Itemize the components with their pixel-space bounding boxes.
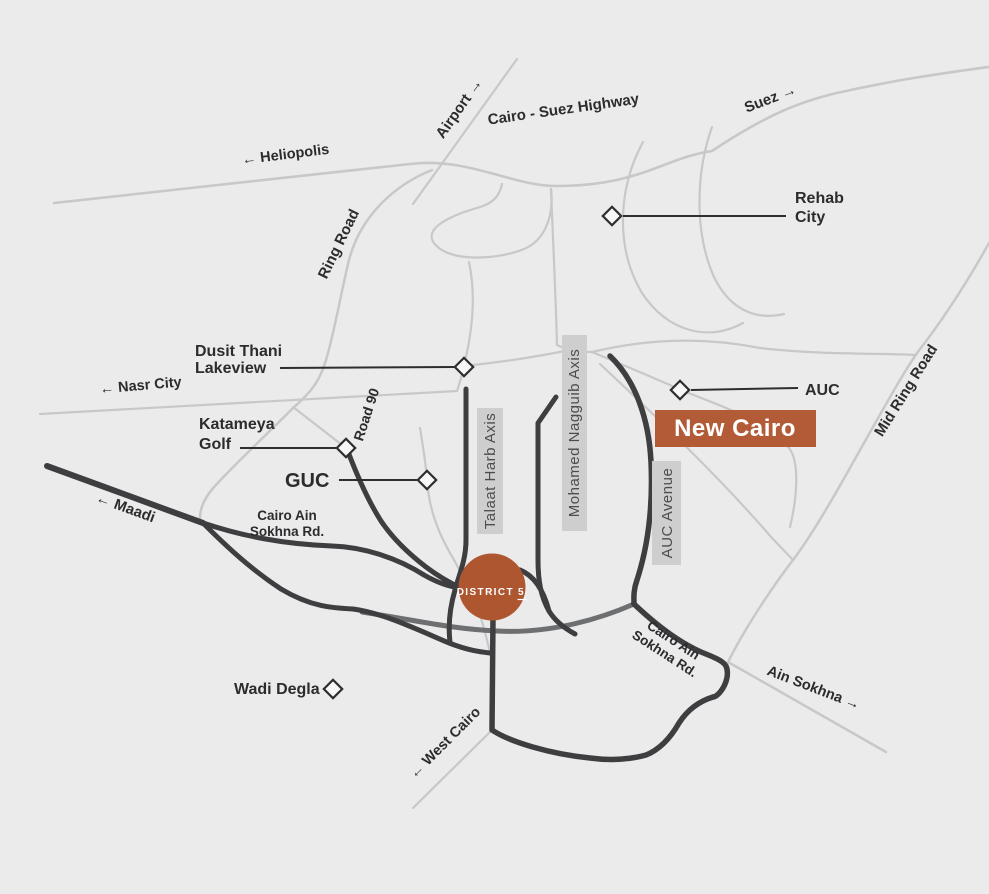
ain-sokhna-label: Ain Sokhna → [765,663,863,713]
cairo-suez-highway-label: Cairo - Suez Highway [487,90,641,128]
new-cairo-highlight: New Cairo [655,410,816,447]
cairo-suez-highway-road [54,67,988,203]
airport-label: Airport → [433,75,487,141]
west-cairo-label: ← West Cairo [406,704,484,782]
katameya-label-line1: Katameya [199,416,275,433]
district5-number: 5 [518,587,525,598]
new-cairo-label: New Cairo [674,415,796,442]
guc-marker-icon [418,471,436,489]
svg-text:Sokhna Rd.: Sokhna Rd. [250,524,324,539]
nagguib-corridor-road [551,189,592,352]
auc-avenue-label: AUC Avenue [659,468,676,559]
airport-road [413,59,517,204]
dusit-hub-road [464,350,570,366]
suez-label: Suez → [742,81,799,116]
talaat-axis-label: Talaat Harb Axis [482,413,499,529]
rehab-arc-1 [623,142,743,332]
rehab-city-label-line1: Rehab [795,190,844,207]
sokhna-right-label: Cairo Ain Sokhna Rd. [630,614,709,680]
wadi-degla-label: Wadi Degla [234,681,320,698]
hub-southeast-road [600,364,793,560]
mid-ring-road-label: Mid Ring Road [871,342,941,440]
auc-connector [691,388,798,390]
katameya-marker-icon [337,439,355,457]
district5-badge: DISTRICT 5 [457,554,527,621]
interior-wiggle-road [432,184,552,258]
auc-marker-icon [671,381,689,399]
guc-label: GUC [285,470,329,492]
rehab-city-label-line2: City [795,209,825,226]
cairo-map: Talaat Harb Axis Mohamed Nagguib Axis AU… [0,0,989,894]
dusit-label-line1: Dusit Thani [195,343,282,360]
heliopolis-label: ← Heliopolis [241,142,330,169]
dark-roads [47,356,727,759]
katameya-label-line2: Golf [199,436,232,453]
hub-east-road [592,341,916,355]
auc-label: AUC [805,382,840,399]
ring-road-label: Ring Road [315,207,363,282]
map-canvas: Talaat Harb Axis Mohamed Nagguib Axis AU… [0,0,989,894]
rehab-arc-2 [700,127,785,316]
dusit-marker-icon [455,358,473,376]
rehab-marker-icon [603,207,621,225]
district5-word: DISTRICT [457,587,514,598]
nagguib-axis-label: Mohamed Nagguib Axis [566,349,583,517]
svg-text:Cairo Ain: Cairo Ain [257,508,317,523]
dusit-label-line2: Lakeview [195,360,267,377]
sokhna-left-label: Cairo Ain Sokhna Rd. [250,508,324,539]
nasr-city-label: ← Nasr City [99,374,182,397]
mid-ring-road [728,243,989,662]
wadi-degla-marker-icon [324,680,342,698]
road-90-label: Road 90 [350,386,382,443]
katameya-link-road [293,407,346,448]
road-90-road [347,449,461,588]
dusit-connector [280,367,454,368]
ain-sokhna-road [728,662,886,752]
cairo-ain-sokhna-upper-road [203,523,461,588]
